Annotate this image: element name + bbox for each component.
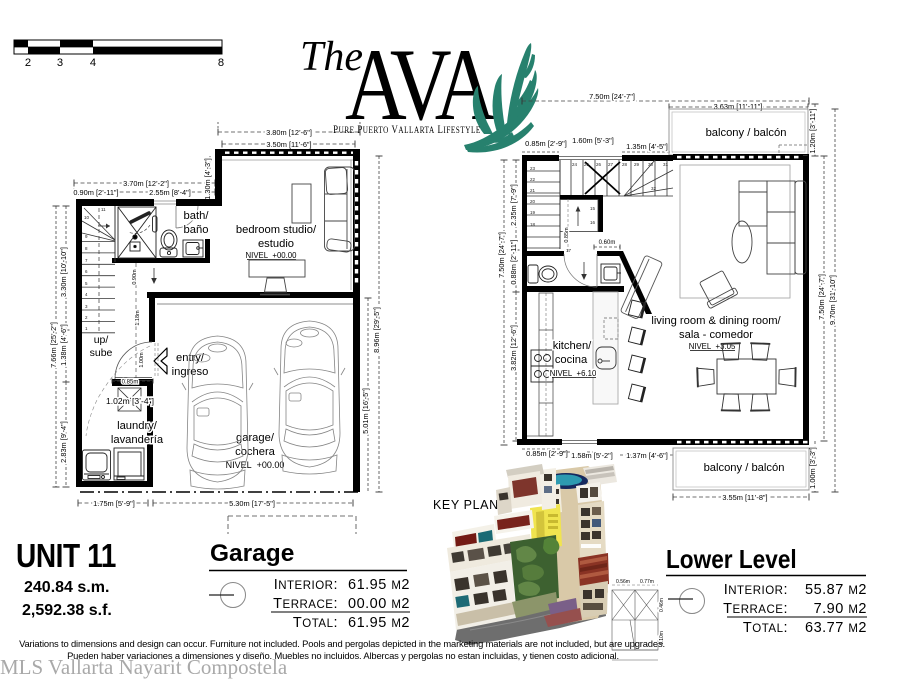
svg-text:2,592.38 s.f.: 2,592.38 s.f. <box>22 602 112 619</box>
svg-text:2.83m [9’-4"]: 2.83m [9’-4"] <box>59 421 68 463</box>
svg-text:10: 10 <box>84 215 90 220</box>
svg-text:5.01m [16’-5"]: 5.01m [16’-5"] <box>361 388 370 434</box>
svg-text:3.63m [11’-11"]: 3.63m [11’-11"] <box>714 102 763 111</box>
svg-text:7.50m [24’-7"]: 7.50m [24’-7"] <box>817 274 826 320</box>
svg-text:lavandería: lavandería <box>111 434 164 446</box>
svg-text:0.56m: 0.56m <box>616 579 630 585</box>
svg-text:0.90m: 0.90m <box>132 269 138 285</box>
svg-text:0.85m [2’-9"]: 0.85m [2’-9"] <box>525 139 567 148</box>
svg-text:28: 28 <box>622 162 628 167</box>
svg-text:17: 17 <box>566 248 572 253</box>
svg-text:1.20m [3’-11"]: 1.20m [3’-11"] <box>808 108 817 153</box>
svg-text:bedroom studio/: bedroom studio/ <box>236 224 317 236</box>
svg-text:estudio: estudio <box>258 238 294 250</box>
svg-text:1.58m [5’-2"]: 1.58m [5’-2"] <box>571 451 613 460</box>
svg-text:balcony / balcón: balcony / balcón <box>706 127 787 139</box>
svg-text:UNIT 11: UNIT 11 <box>16 538 116 575</box>
svg-text:19: 19 <box>530 210 536 215</box>
svg-text:63.77 M2: 63.77 M2 <box>805 620 867 636</box>
svg-text:1.75m [5’-9"]: 1.75m [5’-9"] <box>93 499 135 508</box>
svg-text:Pueden haber variaciones a dim: Pueden haber variaciones a dimensiones y… <box>67 650 619 661</box>
svg-text:3.50m [11’-6"]: 3.50m [11’-6"] <box>266 140 311 149</box>
svg-text:kitchen/: kitchen/ <box>553 340 592 352</box>
svg-text:TOTAL:: TOTAL: <box>743 620 788 636</box>
svg-text:cochera: cochera <box>235 446 276 458</box>
svg-text:3.55m [11’-8"]: 3.55m [11’-8"] <box>722 493 767 502</box>
svg-text:balcony / balcón: balcony / balcón <box>704 462 785 474</box>
svg-text:1.02m [3’-4"]: 1.02m [3’-4"] <box>106 396 154 406</box>
svg-text:0.90m [2’-11"]: 0.90m [2’-11"] <box>73 188 118 197</box>
svg-text:4: 4 <box>90 57 96 69</box>
svg-text:22: 22 <box>530 177 536 182</box>
svg-text:sube: sube <box>90 347 113 359</box>
svg-text:5.30m [17’-5"]: 5.30m [17’-5"] <box>229 499 275 508</box>
svg-text:3: 3 <box>57 57 63 69</box>
svg-text:Garage: Garage <box>210 540 294 567</box>
svg-text:NIVEL +6.10: NIVEL +6.10 <box>550 369 597 378</box>
svg-text:Lower Level: Lower Level <box>666 546 797 575</box>
svg-text:61.95 M2: 61.95 M2 <box>348 615 410 631</box>
svg-text:31: 31 <box>663 162 669 167</box>
svg-text:23: 23 <box>530 166 536 171</box>
svg-text:240.84 s.m.: 240.84 s.m. <box>24 579 109 596</box>
svg-text:1.35m [4’-5"]: 1.35m [4’-5"] <box>626 142 668 151</box>
svg-text:24: 24 <box>572 162 578 167</box>
svg-text:7.66m [25’-2"]: 7.66m [25’-2"] <box>49 322 58 368</box>
svg-text:2.55m [8’-4"]: 2.55m [8’-4"] <box>149 188 191 197</box>
svg-text:1.30m [4’-3"]: 1.30m [4’-3"] <box>203 158 212 200</box>
svg-text:TERRACE:: TERRACE: <box>273 596 338 612</box>
svg-text:NIVEL +00.00: NIVEL +00.00 <box>246 251 298 260</box>
svg-text:TOTAL:: TOTAL: <box>293 615 338 631</box>
svg-text:3.70m [12’-2"]: 3.70m [12’-2"] <box>123 179 169 188</box>
svg-text:25: 25 <box>584 162 590 167</box>
svg-text:garage/: garage/ <box>236 432 275 444</box>
svg-text:20: 20 <box>530 199 536 204</box>
svg-text:2: 2 <box>25 57 31 69</box>
svg-text:cocina: cocina <box>555 354 588 366</box>
svg-text:16: 16 <box>590 220 596 225</box>
svg-text:INTERIOR:: INTERIOR: <box>724 582 788 598</box>
svg-text:8.96m [29’-5"]: 8.96m [29’-5"] <box>372 307 381 353</box>
svg-text:29: 29 <box>634 162 640 167</box>
svg-text:3.30m [10’-10"]: 3.30m [10’-10"] <box>59 247 68 297</box>
svg-text:1.60m [5’-3"]: 1.60m [5’-3"] <box>572 136 614 145</box>
svg-text:32: 32 <box>651 186 657 191</box>
svg-text:11: 11 <box>101 207 106 212</box>
svg-text:8: 8 <box>218 57 224 69</box>
svg-text:0.85m: 0.85m <box>564 227 570 243</box>
svg-text:27: 27 <box>608 162 614 167</box>
svg-text:0.88m [2’-11"]: 0.88m [2’-11"] <box>509 239 518 284</box>
svg-text:9.70m [31’-10"]: 9.70m [31’-10"] <box>828 275 837 325</box>
svg-text:TERRACE:: TERRACE: <box>723 601 788 617</box>
svg-text:KEY PLAN: KEY PLAN <box>433 498 499 512</box>
svg-text:up/: up/ <box>94 334 109 346</box>
svg-text:18: 18 <box>530 222 536 227</box>
svg-text:PURE PUERTO VALLARTA LIFESTYLE: PURE PUERTO VALLARTA LIFESTYLE <box>333 124 481 136</box>
svg-text:sala - comedor: sala - comedor <box>679 329 753 341</box>
svg-text:26: 26 <box>596 162 602 167</box>
svg-text:baño: baño <box>184 224 209 236</box>
svg-text:ingreso: ingreso <box>172 366 209 378</box>
svg-text:0.60m: 0.60m <box>599 240 616 246</box>
svg-text:2.35m [7’-9"]: 2.35m [7’-9"] <box>509 184 518 226</box>
svg-text:21: 21 <box>530 188 536 193</box>
svg-text:55.87 M2: 55.87 M2 <box>805 582 867 598</box>
svg-text:1.37m [4’-6"]: 1.37m [4’-6"] <box>626 451 668 460</box>
svg-text:7.50m [24’-7"]: 7.50m [24’-7"] <box>497 232 506 278</box>
svg-text:3.80m [12’-6"]: 3.80m [12’-6"] <box>266 128 312 137</box>
svg-text:Variations to dimensions and d: Variations to dimensions and design can … <box>19 638 665 649</box>
svg-text:61.95 M2: 61.95 M2 <box>348 577 410 593</box>
svg-text:0.85m: 0.85m <box>122 380 139 386</box>
svg-text:laundry/: laundry/ <box>117 420 158 432</box>
svg-text:NIVEL +00.00: NIVEL +00.00 <box>226 460 285 470</box>
svg-text:bath/: bath/ <box>184 210 210 222</box>
svg-text:INTERIOR:: INTERIOR: <box>274 577 338 593</box>
svg-text:1.00m: 1.00m <box>139 352 145 368</box>
svg-text:00.00 M2: 00.00 M2 <box>348 596 410 612</box>
svg-text:0.85m [2’-9"]: 0.85m [2’-9"] <box>526 449 568 458</box>
svg-text:1.18m: 1.18m <box>135 310 141 326</box>
svg-text:living room & dining room/: living room & dining room/ <box>651 315 781 327</box>
svg-text:7.50m [24’-7"]: 7.50m [24’-7"] <box>589 92 635 101</box>
svg-text:0.77m: 0.77m <box>640 579 654 585</box>
svg-text:7.90 M2: 7.90 M2 <box>814 601 867 617</box>
svg-text:1.38m [4’-6"]: 1.38m [4’-6"] <box>59 324 68 366</box>
svg-text:0.46m: 0.46m <box>659 598 665 612</box>
svg-text:3.82m [12’-6"]: 3.82m [12’-6"] <box>509 325 518 371</box>
svg-text:30: 30 <box>648 162 654 167</box>
svg-text:15: 15 <box>590 206 596 211</box>
